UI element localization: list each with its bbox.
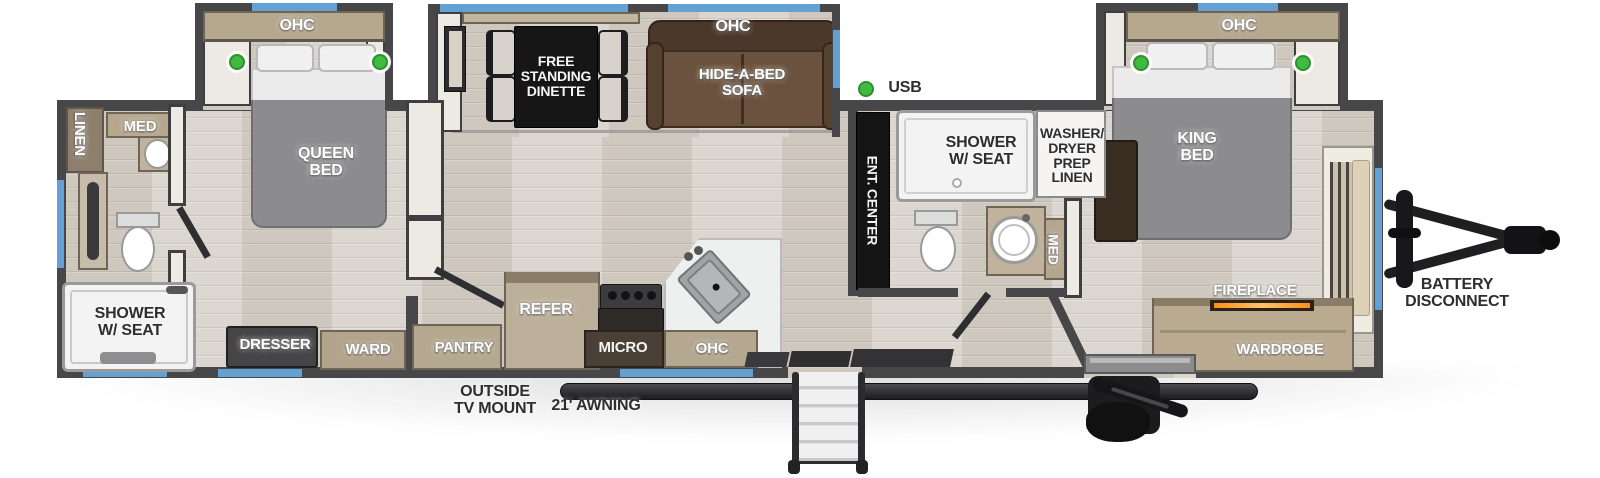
dinette-slide-edge xyxy=(452,130,838,133)
rear-sink xyxy=(144,139,171,169)
rear-shower-seat xyxy=(100,352,156,364)
label-awning: 21' AWNING xyxy=(536,398,656,415)
rear-toilet-bowl xyxy=(121,226,155,272)
usb-indicator xyxy=(858,81,874,97)
dinette-chair-3 xyxy=(598,30,628,76)
mid-faucet xyxy=(1022,214,1030,222)
king-slide-wall-left xyxy=(1096,3,1104,110)
folded-steps-drum xyxy=(1086,402,1150,442)
label-queen-bed: QUEEN BED xyxy=(286,146,366,180)
label-ohc-sofa: OHC xyxy=(703,19,763,36)
entry-steps-rail-right xyxy=(858,372,865,468)
label-ward: WARD xyxy=(333,342,403,358)
dinette-window-ledge xyxy=(462,12,640,24)
dinette-window-2 xyxy=(668,4,820,12)
entry-steps-foot-right xyxy=(856,460,868,474)
king-reading-light-left xyxy=(1133,55,1149,71)
floorplan-canvas: OHCLINENMEDQUEEN BEDSHOWER W/ SEATDRESSE… xyxy=(0,0,1600,478)
label-refer: REFER xyxy=(511,302,581,319)
rear-cabinet-handle xyxy=(87,182,99,260)
label-usb: USB xyxy=(883,80,927,97)
stove-burners xyxy=(608,291,617,300)
front-closet-louvers xyxy=(1330,162,1352,314)
mid-sink-basin xyxy=(998,224,1030,256)
hitch-jack-pin xyxy=(1388,228,1421,238)
label-med-rear: MED xyxy=(115,119,165,135)
king-bed-blanket xyxy=(1112,98,1292,240)
king-pillow-right xyxy=(1212,42,1276,70)
label-pantry: PANTRY xyxy=(424,340,504,356)
label-med-mid: MED xyxy=(1046,227,1061,271)
window-rear xyxy=(57,180,64,268)
window-front xyxy=(1375,168,1382,310)
front-wardrobe-shelf-line xyxy=(1160,330,1346,333)
label-shower-mid: SHOWER W/ SEAT xyxy=(936,135,1026,169)
rear-shower-controls xyxy=(166,286,188,294)
queen-reading-light-left xyxy=(229,54,245,70)
label-hide-a-bed-sofa: HIDE-A-BED SOFA xyxy=(682,67,802,99)
label-ohc-queen: OHC xyxy=(267,18,327,35)
king-reading-light-right xyxy=(1295,55,1311,71)
hitch-coupler-tip xyxy=(1540,230,1560,250)
rear-bath-wall xyxy=(168,104,186,206)
midbath-wall-right xyxy=(1064,198,1082,298)
front-entry-landing xyxy=(1084,354,1196,374)
label-king-bed: KING BED xyxy=(1162,131,1232,165)
entry-mat-2 xyxy=(788,351,851,367)
mid-shower-drain xyxy=(952,178,962,188)
midbath-wall-bottom-1 xyxy=(858,288,958,297)
kitchen-faucet xyxy=(684,252,693,261)
queen-slide-wall-left xyxy=(195,3,203,110)
entry-steps-rail-left xyxy=(792,372,799,468)
sofa-arm-left xyxy=(646,42,664,130)
refrigerator-top xyxy=(506,272,598,283)
label-dresser: DRESSER xyxy=(230,337,320,353)
label-shower-rear: SHOWER W/ SEAT xyxy=(85,306,175,340)
entry-steps-treads xyxy=(799,372,858,464)
king-slide-wall-right xyxy=(1340,3,1348,110)
entry-steps-foot-left xyxy=(788,460,800,474)
queen-slide-window xyxy=(252,3,337,11)
entry-mat-3 xyxy=(850,349,954,367)
queen-reading-light-right xyxy=(372,54,388,70)
king-pillow-left xyxy=(1146,42,1208,70)
label-washer-dryer-prep: WASHER/ DRYER PREP LINEN xyxy=(1032,126,1112,185)
mid-toilet-bowl xyxy=(920,226,956,272)
queen-pillow-right xyxy=(318,44,376,72)
front-entry-landing-line xyxy=(1090,358,1190,363)
label-free-standing-dinette: FREE STANDING DINETTE xyxy=(511,54,601,98)
label-ent-center: ENT. CENTER xyxy=(865,145,880,255)
label-outside-tv-mount: OUTSIDE TV MOUNT xyxy=(440,384,550,418)
fireplace-glow xyxy=(1214,303,1310,308)
dinette-window-1 xyxy=(440,4,628,12)
window-kitchen xyxy=(620,369,753,377)
label-battery-disconnect: BATTERY DISCONNECT xyxy=(1392,277,1522,311)
bedroom-wall-upper xyxy=(406,100,444,218)
tv-screen xyxy=(449,31,462,87)
label-wardrobe: WARDROBE xyxy=(1225,342,1335,358)
label-ohc-king: OHC xyxy=(1209,18,1269,35)
label-linen: LINEN xyxy=(71,104,87,164)
queen-pillow-left xyxy=(256,44,314,72)
label-micro: MICRO xyxy=(588,340,658,356)
king-slide-window xyxy=(1198,3,1278,11)
mid-toilet-tank xyxy=(914,210,958,226)
label-ohc-kitchen: OHC xyxy=(682,341,742,357)
entry-mat-1 xyxy=(744,352,789,367)
window-bottom-2 xyxy=(218,369,302,377)
dinette-window-side xyxy=(833,30,840,88)
dinette-chair-4 xyxy=(598,76,628,122)
label-fireplace: FIREPLACE xyxy=(1205,283,1305,299)
hitch-jack xyxy=(1396,190,1413,288)
front-closet-panel xyxy=(1352,160,1370,316)
